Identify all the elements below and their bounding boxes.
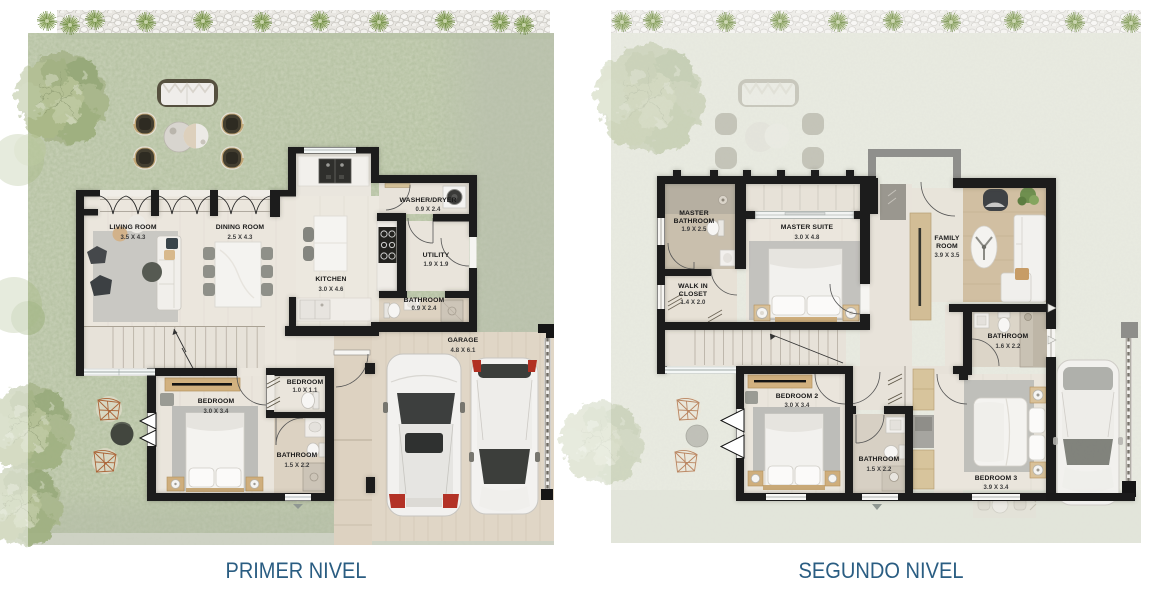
svg-text:1.4 X 2.0: 1.4 X 2.0 xyxy=(681,300,706,306)
svg-text:0.9 X 2.4: 0.9 X 2.4 xyxy=(416,207,441,213)
svg-text:UTILITY: UTILITY xyxy=(423,252,450,259)
svg-text:DINING ROOM: DINING ROOM xyxy=(216,224,265,231)
svg-text:ROOM: ROOM xyxy=(936,243,958,250)
svg-text:1.0 X 1.1: 1.0 X 1.1 xyxy=(293,388,318,394)
svg-text:3.9 X 3.4: 3.9 X 3.4 xyxy=(984,485,1009,491)
svg-text:3.0 X 4.8: 3.0 X 4.8 xyxy=(795,235,820,241)
svg-text:KITCHEN: KITCHEN xyxy=(315,276,346,283)
svg-text:4.8 X 6.1: 4.8 X 6.1 xyxy=(451,348,476,354)
svg-text:LIVING ROOM: LIVING ROOM xyxy=(109,224,157,231)
svg-text:0.9 X 2.4: 0.9 X 2.4 xyxy=(412,306,437,312)
svg-text:BEDROOM: BEDROOM xyxy=(198,398,235,405)
svg-text:MASTER: MASTER xyxy=(679,210,709,217)
svg-text:SEGUNDO NIVEL: SEGUNDO NIVEL xyxy=(799,558,964,583)
svg-text:3.9 X 3.5: 3.9 X 3.5 xyxy=(935,253,960,259)
svg-text:BEDROOM: BEDROOM xyxy=(287,379,324,386)
svg-text:3.5 X 4.3: 3.5 X 4.3 xyxy=(121,235,146,241)
svg-text:WALK IN: WALK IN xyxy=(678,283,708,290)
svg-text:FAMILY: FAMILY xyxy=(934,235,960,242)
svg-text:BATHROOM: BATHROOM xyxy=(674,218,715,225)
svg-text:3.0 X 3.4: 3.0 X 3.4 xyxy=(204,409,229,415)
svg-text:3.0 X 4.6: 3.0 X 4.6 xyxy=(319,287,344,293)
svg-text:BATHROOM: BATHROOM xyxy=(859,456,900,463)
svg-text:1.5 X 2.2: 1.5 X 2.2 xyxy=(285,463,310,469)
svg-text:BEDROOM 3: BEDROOM 3 xyxy=(975,475,1018,482)
svg-text:WASHER/DRYER: WASHER/DRYER xyxy=(399,197,456,204)
svg-text:3.0 X 3.4: 3.0 X 3.4 xyxy=(785,403,810,409)
svg-text:BATHROOM: BATHROOM xyxy=(404,297,445,304)
svg-text:GARAGE: GARAGE xyxy=(448,337,479,344)
svg-text:MASTER SUITE: MASTER SUITE xyxy=(781,224,834,231)
svg-text:CLOSET: CLOSET xyxy=(679,291,708,298)
svg-text:1.9 X 1.9: 1.9 X 1.9 xyxy=(424,262,449,268)
svg-text:2.5 X 4.3: 2.5 X 4.3 xyxy=(228,235,253,241)
svg-text:1.9 X 2.5: 1.9 X 2.5 xyxy=(682,227,707,233)
svg-text:BATHROOM: BATHROOM xyxy=(988,333,1029,340)
svg-text:BATHROOM: BATHROOM xyxy=(277,452,318,459)
svg-text:1.5 X 2.2: 1.5 X 2.2 xyxy=(867,467,892,473)
svg-text:BEDROOM 2: BEDROOM 2 xyxy=(776,393,819,400)
svg-text:PRIMER NIVEL: PRIMER NIVEL xyxy=(226,558,367,583)
svg-text:1.6 X 2.2: 1.6 X 2.2 xyxy=(996,344,1021,350)
